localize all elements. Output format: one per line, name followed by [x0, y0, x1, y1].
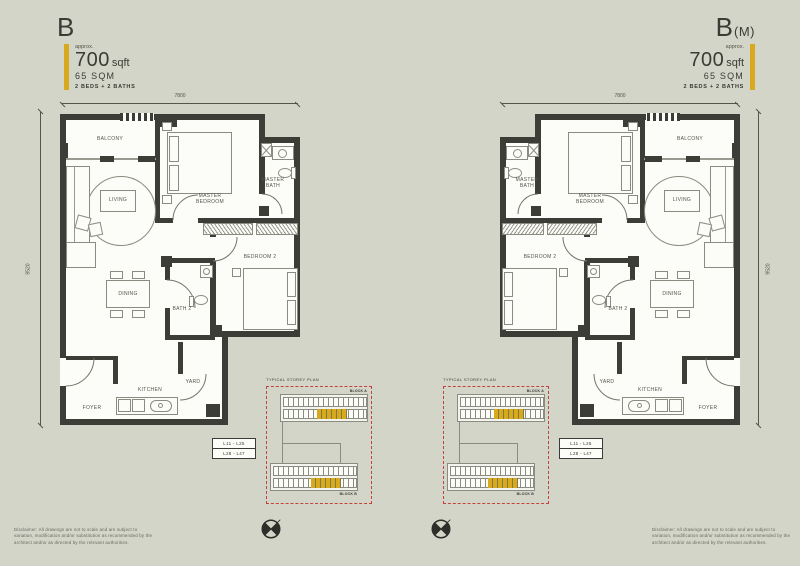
dimension-line — [502, 103, 738, 104]
pillow — [169, 136, 179, 162]
toilet — [592, 295, 606, 305]
dimension-side: 9520 — [36, 112, 46, 425]
sink — [278, 149, 287, 158]
sqft-unit: sqft — [112, 57, 130, 69]
room-label-kitchen: KITCHEN — [125, 387, 175, 393]
door-arc — [180, 374, 206, 400]
dimension-side: 9520 — [754, 112, 764, 425]
unit-row — [283, 397, 367, 407]
compass-icon — [429, 517, 453, 541]
sqft-line: 700sqft — [75, 50, 135, 70]
pillow — [287, 300, 296, 325]
sqm-value: 65 SQM — [684, 71, 744, 81]
room-label-foyer: FOYER — [688, 405, 728, 411]
room-label-bedroom2: BEDROOM 2 — [516, 254, 564, 260]
dimension-line — [62, 103, 298, 104]
shower — [528, 143, 539, 157]
block-a-wing: BLOCK A — [457, 394, 545, 422]
level-range-1: L11 - L25 — [560, 439, 602, 449]
storey-plan-boundary: BLOCK A BLOCK B — [443, 386, 549, 504]
level-range-2: L28 - L47 — [213, 449, 255, 458]
sofa — [66, 166, 90, 244]
chair — [110, 310, 123, 318]
dimension-top: 7800 — [62, 94, 298, 104]
toilet — [291, 167, 296, 179]
dimension-line — [40, 112, 41, 425]
block-b-label: BLOCK B — [340, 492, 357, 496]
stove — [669, 399, 682, 412]
dimension-value: 9520 — [26, 263, 32, 274]
floor-plan-page: B approx. 700sqft 65 SQM 2 BEDS + 2 BATH… — [0, 0, 800, 566]
wardrobe — [547, 223, 597, 235]
sqft-line: 700sqft — [684, 50, 744, 70]
stove — [132, 399, 145, 412]
dimension-line — [758, 112, 759, 425]
unit-bm-title: B(M) — [716, 12, 755, 43]
door-arc — [594, 374, 620, 400]
wardrobe — [256, 223, 298, 235]
highlighted-units — [494, 409, 524, 419]
room-label-master-bath: MASTER BATH — [258, 177, 288, 190]
chaise — [704, 242, 734, 268]
room-label-balcony: BALCONY — [85, 136, 135, 142]
pillow — [621, 136, 631, 162]
dimension-top: 7800 — [502, 94, 738, 104]
door-arc — [518, 194, 538, 214]
sofa — [710, 166, 734, 244]
corridor-line — [340, 443, 341, 463]
chair — [132, 310, 145, 318]
highlighted-units — [317, 409, 347, 419]
chaise — [66, 242, 96, 268]
sqft-value: 700 — [689, 49, 724, 71]
sink — [513, 149, 522, 158]
accent-bar — [64, 44, 69, 90]
pillow — [621, 165, 631, 191]
corridor-line — [282, 443, 340, 444]
stove — [655, 399, 668, 412]
block-b-label: BLOCK B — [517, 492, 534, 496]
pillow — [504, 272, 513, 297]
level-range-1: L11 - L25 — [213, 439, 255, 449]
room-label-bath2: BATH 2 — [603, 306, 633, 312]
chair — [677, 310, 690, 318]
area-info: approx. 700sqft 65 SQM 2 BEDS + 2 BATHS — [75, 44, 135, 90]
beds-baths: 2 BEDS + 2 BATHS — [684, 84, 744, 90]
disclaimer-left: Disclaimer: All drawings are not to scal… — [14, 527, 154, 546]
door-arc — [213, 237, 237, 261]
compass-icon — [259, 517, 283, 541]
sqm-value: 65 SQM — [75, 71, 135, 81]
block-a-label: BLOCK A — [350, 389, 367, 393]
dimension-value: 7800 — [62, 93, 298, 99]
wardrobe — [502, 223, 544, 235]
room-label-foyer: FOYER — [72, 405, 112, 411]
room-label-bath2: BATH 2 — [167, 306, 197, 312]
storey-plan-title: TYPICAL STOREY PLAN — [443, 377, 549, 382]
cushion — [88, 222, 103, 237]
chair — [132, 271, 145, 279]
level-range-2: L28 - L47 — [560, 449, 602, 458]
toilet — [504, 167, 509, 179]
room-label-master-bedroom: MASTER BEDROOM — [568, 193, 612, 206]
chair — [677, 271, 690, 279]
unit-title-main: B — [716, 12, 734, 42]
unit-title-main: B — [57, 12, 75, 42]
unit-bm-info: approx. 700sqft 65 SQM 2 BEDS + 2 BATHS — [684, 44, 755, 90]
cushion — [697, 222, 712, 237]
door-arc — [262, 194, 282, 214]
room-label-living: LIVING — [100, 190, 136, 212]
basin — [590, 268, 597, 275]
typical-storey-plan: TYPICAL STOREY PLAN BLOCK A BLOCK B — [266, 377, 372, 504]
chair — [655, 310, 668, 318]
block-a-label: BLOCK A — [527, 389, 544, 393]
pillow — [287, 272, 296, 297]
unit-b-title: B — [57, 12, 75, 43]
unit-title-paren: (M) — [734, 24, 755, 39]
toilet — [194, 295, 208, 305]
level-range-box: L11 - L25 L28 - L47 — [559, 438, 603, 459]
floor-plan-b: BALCONY LIVING MASTER BEDROOM MASTER BAT… — [60, 110, 300, 425]
unit-row — [450, 466, 534, 476]
room-label-kitchen: KITCHEN — [625, 387, 675, 393]
corridor-line — [517, 443, 518, 463]
side-table — [162, 195, 172, 204]
accent-bar — [750, 44, 755, 90]
block-b-wing: BLOCK B — [447, 463, 535, 491]
pillow — [504, 300, 513, 325]
block-a-wing: BLOCK A — [280, 394, 368, 422]
highlighted-units — [488, 478, 518, 488]
door-arc — [706, 358, 734, 386]
dimension-value: 9520 — [766, 263, 772, 274]
sqft-value: 700 — [75, 49, 110, 71]
kitchen-sink — [637, 403, 642, 408]
typical-storey-plan: TYPICAL STOREY PLAN BLOCK A BLOCK B — [443, 377, 549, 504]
room-label-dining: DINING — [106, 291, 150, 297]
pillow — [169, 165, 179, 191]
sofa — [74, 166, 75, 244]
storey-plan-boundary: BLOCK A BLOCK B — [266, 386, 372, 504]
room-label-master-bedroom: MASTER BEDROOM — [188, 193, 232, 206]
room-label-living: LIVING — [664, 190, 700, 212]
side-table — [162, 122, 172, 131]
door-arc — [66, 358, 94, 386]
beds-baths: 2 BEDS + 2 BATHS — [75, 84, 135, 90]
sofa — [725, 166, 726, 244]
chair — [655, 271, 668, 279]
room-label-yard: YARD — [178, 379, 208, 385]
room-label-dining: DINING — [650, 291, 694, 297]
side-table — [628, 122, 638, 131]
stove — [118, 399, 131, 412]
side-table — [232, 268, 241, 277]
room-label-bedroom2: BEDROOM 2 — [236, 254, 284, 260]
area-info: approx. 700sqft 65 SQM 2 BEDS + 2 BATHS — [684, 44, 744, 90]
shower — [261, 143, 272, 157]
unit-row — [273, 466, 357, 476]
door-arc — [563, 237, 587, 261]
unit-row — [460, 397, 544, 407]
level-range-box: L11 - L25 L28 - L47 — [212, 438, 256, 459]
side-table — [628, 195, 638, 204]
room-label-yard: YARD — [592, 379, 622, 385]
side-table — [559, 268, 568, 277]
disclaimer-right: Disclaimer: All drawings are not to scal… — [652, 527, 792, 546]
storey-plan-title: TYPICAL STOREY PLAN — [266, 377, 372, 382]
basin — [203, 268, 210, 275]
unit-b-info: approx. 700sqft 65 SQM 2 BEDS + 2 BATHS — [64, 44, 135, 90]
highlighted-units — [311, 478, 341, 488]
kitchen-sink — [158, 403, 163, 408]
wardrobe — [203, 223, 253, 235]
block-b-wing: BLOCK B — [270, 463, 358, 491]
sqft-unit: sqft — [726, 57, 744, 69]
room-label-balcony: BALCONY — [665, 136, 715, 142]
room-label-master-bath: MASTER BATH — [512, 177, 542, 190]
chair — [110, 271, 123, 279]
corridor-line — [459, 443, 517, 444]
dimension-value: 7800 — [502, 93, 738, 99]
